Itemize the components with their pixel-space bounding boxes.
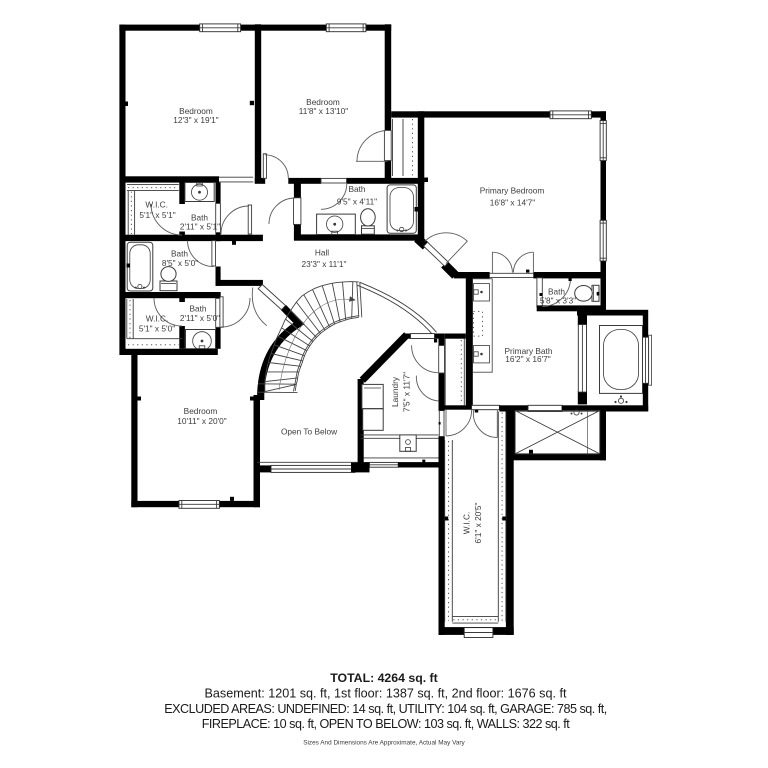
svg-text:Basement: 1201 sq. ft, 1st flo: Basement: 1201 sq. ft, 1st floor: 1387 s…: [205, 687, 567, 701]
svg-text:8'5" x 5'0": 8'5" x 5'0": [162, 258, 198, 268]
svg-text:23'3" x 11'1": 23'3" x 11'1": [302, 259, 347, 269]
svg-text:7'5" x 11'7": 7'5" x 11'7": [402, 372, 412, 412]
svg-text:5'1" x 5'0": 5'1" x 5'0": [139, 323, 175, 333]
svg-text:12'3" x 19'1": 12'3" x 19'1": [173, 115, 219, 125]
svg-text:6'1" x 20'5": 6'1" x 20'5": [473, 503, 483, 544]
svg-text:2'11" x 5'0": 2'11" x 5'0": [180, 313, 220, 323]
svg-text:Hall: Hall: [315, 248, 329, 258]
svg-text:10'11" x 20'0": 10'11" x 20'0": [177, 416, 227, 426]
svg-text:Sizes And Dimensions Are Appro: Sizes And Dimensions Are Approximate, Ac…: [303, 740, 465, 747]
svg-text:W.I.C.: W.I.C.: [462, 512, 472, 535]
svg-text:9'5" x 4'11": 9'5" x 4'11": [337, 196, 377, 206]
svg-text:5'8" x 3'3": 5'8" x 3'3": [540, 295, 576, 305]
svg-text:Bath: Bath: [189, 303, 206, 313]
svg-text:Open To Below: Open To Below: [281, 426, 338, 436]
svg-text:Bath: Bath: [171, 248, 188, 258]
svg-text:W.I.C.: W.I.C.: [146, 313, 169, 323]
svg-text:2'11" x 5'1": 2'11" x 5'1": [180, 221, 220, 231]
svg-text:Primary Bedroom: Primary Bedroom: [480, 185, 545, 195]
svg-text:TOTAL: 4264 sq. ft: TOTAL: 4264 sq. ft: [330, 671, 438, 685]
svg-text:16'8" x 14'7": 16'8" x 14'7": [490, 197, 536, 207]
svg-text:16'2" x 16'7": 16'2" x 16'7": [505, 354, 551, 364]
svg-text:W.I.C.: W.I.C.: [145, 199, 168, 209]
svg-text:11'8" x 13'10": 11'8" x 13'10": [299, 106, 349, 116]
svg-text:Laundry: Laundry: [390, 376, 400, 407]
svg-text:Bedroom: Bedroom: [184, 406, 218, 416]
svg-text:EXCLUDED AREAS: UNDEFINED: 14: EXCLUDED AREAS: UNDEFINED: 14 sq. ft, UT…: [164, 702, 607, 716]
svg-text:Bath: Bath: [348, 184, 365, 194]
svg-text:FIREPLACE: 10 sq. ft, OPEN TO: FIREPLACE: 10 sq. ft, OPEN TO BELOW: 103…: [202, 717, 571, 731]
svg-text:5'1" x 5'1": 5'1" x 5'1": [139, 210, 175, 220]
